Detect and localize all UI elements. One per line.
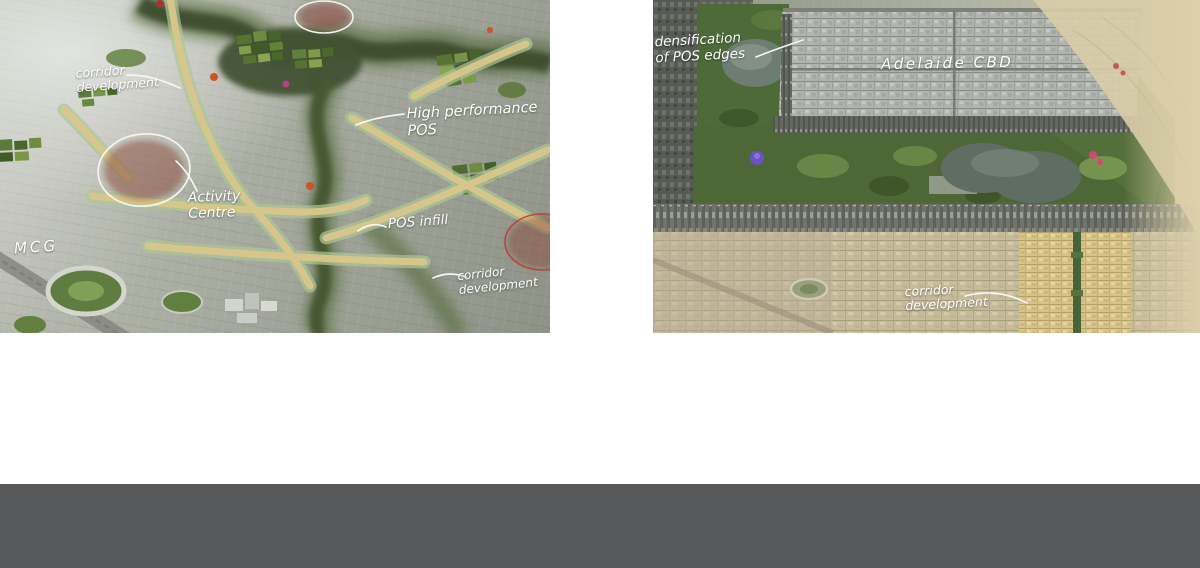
mcg-parkland — [0, 256, 202, 333]
annotation-corridor-development-top: corridor development — [75, 61, 159, 95]
caption-bar: “GOD: Green Oriented Development” (Melbo… — [0, 484, 1200, 568]
annotation-activity-centre: Activity Centre — [187, 188, 241, 222]
figure-adelaide-aerial: densification of POS edges Adelaide CBD … — [653, 0, 1200, 333]
annotation-high-performance-pos: High performance POS — [406, 100, 539, 140]
annotation-mcg: MCG — [13, 237, 58, 257]
annotation-corridor-development-right: corridor development — [904, 281, 988, 314]
book-page: corridor development High performance PO… — [0, 0, 1200, 568]
white-roofs — [225, 293, 277, 323]
green-corridor-median — [1073, 232, 1081, 333]
annotation-densification-pos-edges: densification of POS edges — [654, 31, 745, 67]
figure-melbourne-aerial: corridor development High performance PO… — [0, 0, 550, 333]
terrace-band — [653, 204, 1200, 233]
annotation-adelaide-cbd: Adelaide CBD — [881, 54, 1014, 74]
